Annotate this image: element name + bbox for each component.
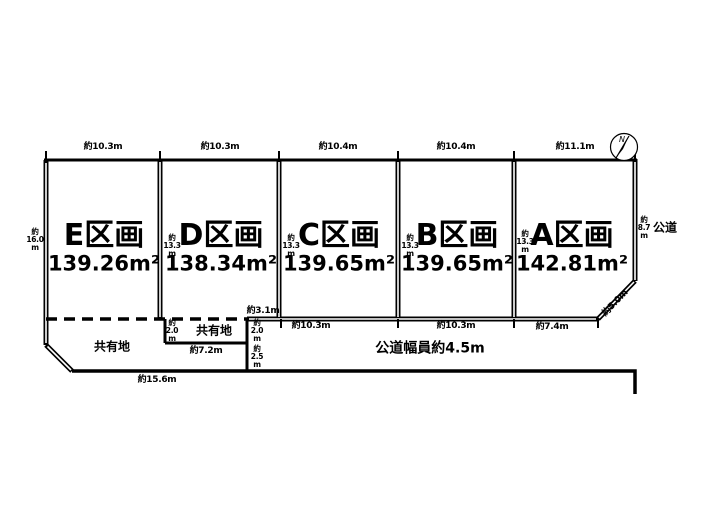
plot-label-a: A区画 <box>530 221 613 251</box>
road-width-label: 公道幅員約4.5m <box>375 341 484 356</box>
dim-shared-box-left: 約 2.0 m <box>166 319 178 343</box>
compass-north-icon: N <box>611 134 638 161</box>
plot-label-b: B区画 <box>416 221 499 251</box>
plot-area-b: 139.65m² <box>401 254 513 275</box>
dim-right-plot-a: 約 8.7 m <box>638 216 650 240</box>
dim-top-plot-d: 約10.3m <box>201 143 240 153</box>
dim-shared-right-lower: 約 2.5 m <box>251 345 263 369</box>
dim-top-plot-a: 約11.1m <box>556 143 595 153</box>
shared-land-left-label: 共有地 <box>94 340 130 353</box>
compass-north-label: N <box>619 135 625 144</box>
plot-area-e: 139.26m² <box>48 254 160 275</box>
dim-bottom-plot-d: 約3.1m <box>247 307 280 317</box>
shared-land-box-label: 共有地 <box>196 324 232 337</box>
plot-label-d: D区画 <box>179 221 264 251</box>
plot-area-d: 138.34m² <box>165 254 277 275</box>
dim-side-plot-e: 約 16.0 m <box>26 228 43 252</box>
plot-area-c: 139.65m² <box>283 254 395 275</box>
plot-label-e: E区画 <box>64 221 145 251</box>
dim-bottom-plot-a: 約7.4m <box>536 323 569 333</box>
dim-shared-box-right: 約 2.0 m <box>251 319 263 343</box>
road-east-label: 公道 <box>653 221 677 234</box>
plot-label-c: C区画 <box>298 221 380 251</box>
plot-area-a: 142.81m² <box>516 254 628 275</box>
dim-bottom-plot-c: 約10.3m <box>292 322 331 332</box>
site-plan: N 約10.3m 約10.3m 約10.4m 約10.4m 約11.1m 約 1… <box>0 0 705 525</box>
dim-shared-bottom: 約15.6m <box>138 376 177 386</box>
dim-top-plot-e: 約10.3m <box>84 143 123 153</box>
dim-shared-box-bottom: 約7.2m <box>190 347 223 357</box>
dim-top-plot-c: 約10.4m <box>319 143 358 153</box>
dim-top-plot-b: 約10.4m <box>437 143 476 153</box>
dim-bottom-plot-b: 約10.3m <box>437 322 476 332</box>
